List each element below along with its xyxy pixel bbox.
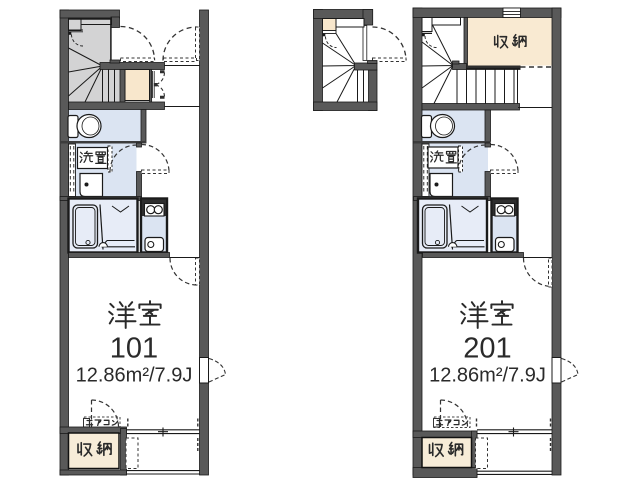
svg-text:12.86m²/7.9J: 12.86m²/7.9J [76,365,193,387]
svg-text:201: 201 [463,333,511,365]
svg-text:101: 101 [110,333,158,365]
svg-text:12.86m²/7.9J: 12.86m²/7.9J [429,365,546,387]
